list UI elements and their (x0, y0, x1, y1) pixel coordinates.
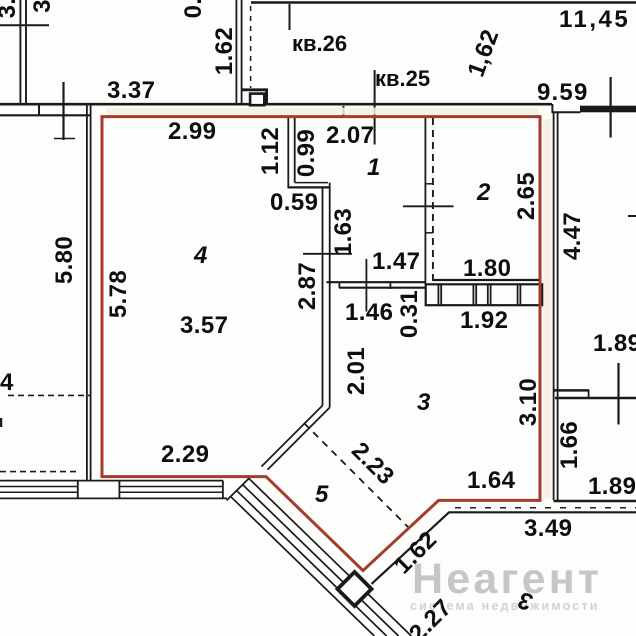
svg-text:2.07: 2.07 (326, 122, 374, 149)
svg-text:9.59: 9.59 (537, 79, 589, 106)
svg-text:1.12: 1.12 (257, 127, 284, 175)
svg-text:5.78: 5.78 (105, 270, 132, 318)
svg-text:кв.25: кв.25 (375, 66, 430, 91)
svg-text:3: 3 (29, 0, 56, 13)
svg-text:5.80: 5.80 (51, 236, 78, 284)
svg-text:3.49: 3.49 (524, 515, 572, 542)
svg-text:11,45: 11,45 (559, 6, 630, 33)
svg-text:1.64: 1.64 (467, 467, 516, 494)
svg-text:0.59: 0.59 (270, 189, 318, 216)
svg-text:1.62: 1.62 (211, 27, 238, 75)
svg-text:1.92: 1.92 (460, 307, 508, 334)
svg-text:3.57: 3.57 (180, 312, 228, 339)
svg-text:кв.26: кв.26 (292, 31, 347, 56)
svg-text:3.37: 3.37 (107, 77, 155, 104)
svg-text:2: 2 (476, 179, 491, 206)
svg-text:0.31: 0.31 (396, 290, 423, 338)
svg-text:5: 5 (315, 481, 329, 508)
svg-text:Неагент: Неагент (412, 555, 602, 603)
svg-text:1.63: 1.63 (330, 208, 357, 256)
svg-text:1.46: 1.46 (345, 299, 393, 326)
svg-text:2.01: 2.01 (343, 347, 370, 395)
svg-text:4: 4 (0, 369, 14, 396)
svg-text:2.29: 2.29 (161, 441, 209, 468)
svg-text:3.10: 3.10 (515, 378, 542, 426)
svg-text:1.89: 1.89 (593, 330, 636, 357)
svg-text:1.89: 1.89 (588, 473, 636, 500)
svg-text:3: 3 (417, 389, 431, 416)
svg-text:4.47: 4.47 (559, 212, 586, 260)
svg-text:1.47: 1.47 (372, 248, 420, 275)
svg-text:0.: 0. (180, 0, 207, 18)
svg-text:4: 4 (193, 242, 207, 269)
svg-text:0.99: 0.99 (293, 129, 320, 177)
svg-text:2.99: 2.99 (168, 118, 216, 145)
svg-text:1.66: 1.66 (556, 421, 583, 469)
svg-text:2.65: 2.65 (513, 172, 540, 220)
svg-text:1.80: 1.80 (463, 255, 511, 282)
svg-text:1: 1 (367, 154, 380, 181)
svg-text:3.: 3. (0, 0, 21, 18)
svg-text:2.87: 2.87 (294, 262, 321, 310)
